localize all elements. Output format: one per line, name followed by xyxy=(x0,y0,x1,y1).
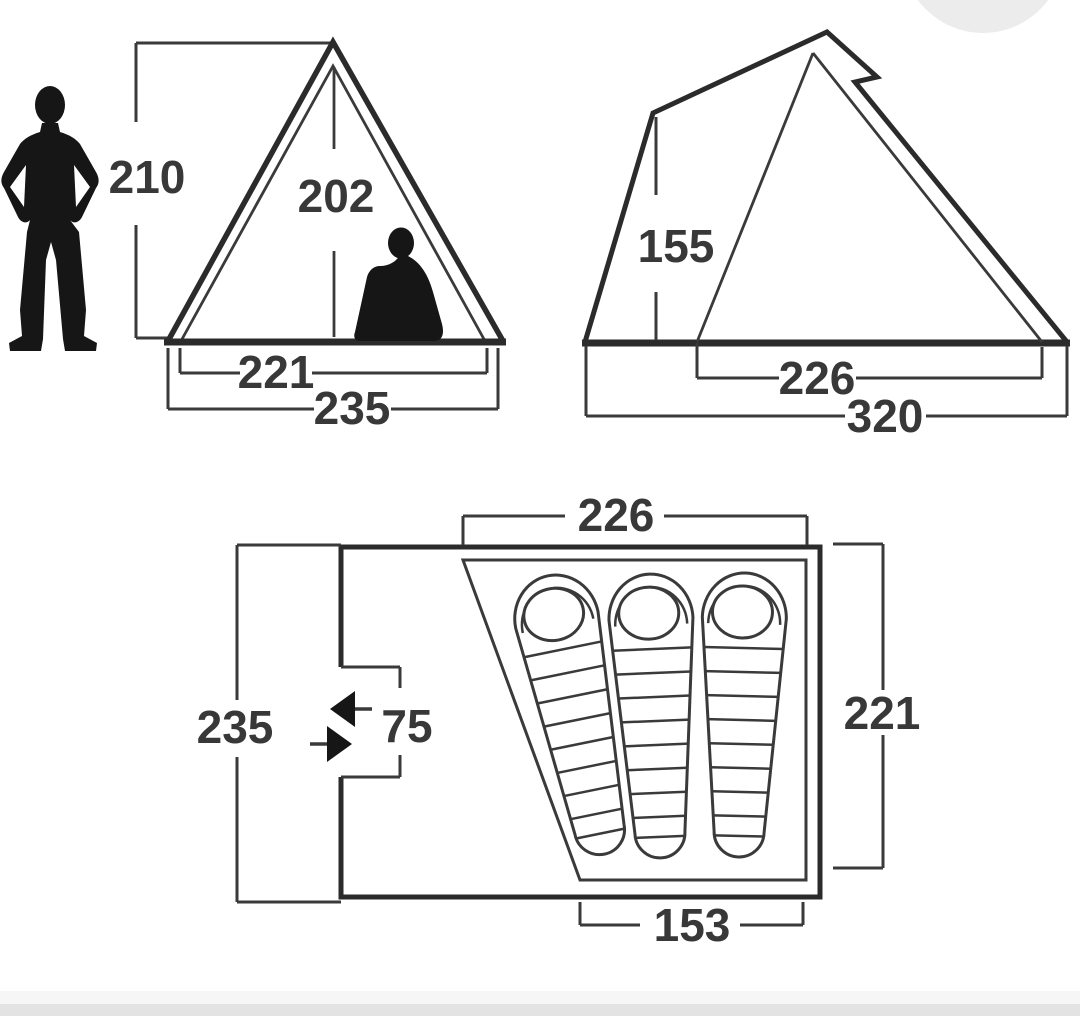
corner-overlay-circle xyxy=(902,0,1064,33)
label-front-inner-height: 202 xyxy=(298,170,375,222)
sleeping-bags xyxy=(507,567,788,862)
front-view xyxy=(136,42,506,409)
label-floor-overall-depth: 235 xyxy=(197,701,274,753)
label-floor-inner-width-bottom: 153 xyxy=(654,899,731,951)
standing-person-body xyxy=(1,123,98,351)
tent-dimension-diagram: 210 202 221 235 155 226 320 226 235 75 2… xyxy=(0,0,1080,1016)
label-front-overall-width: 235 xyxy=(314,382,391,434)
sitting-person-silhouette xyxy=(354,228,443,342)
label-front-inner-width: 221 xyxy=(238,346,315,398)
sitting-person-head xyxy=(388,228,414,259)
label-floor-inner-width-top: 226 xyxy=(578,489,655,541)
standing-person-silhouette xyxy=(1,86,98,351)
width-221-dimension-line xyxy=(180,348,487,373)
sleeping-bag-right xyxy=(696,572,787,858)
label-floor-inner-depth: 221 xyxy=(844,687,921,739)
sitting-person-body xyxy=(354,256,443,341)
label-front-overall-height: 210 xyxy=(109,151,186,203)
label-side-front-height: 155 xyxy=(638,220,715,272)
door-arrow-left-icon xyxy=(330,691,355,727)
standing-person-head xyxy=(35,86,65,124)
label-floor-door-clearance: 75 xyxy=(381,700,432,752)
label-side-inner-length: 226 xyxy=(779,352,856,404)
door-arrow-right-icon xyxy=(327,726,352,762)
length-226-dimension-line xyxy=(697,343,1042,378)
label-side-overall-length: 320 xyxy=(847,390,924,442)
footer-bar xyxy=(0,1004,1080,1016)
footer-bar-light xyxy=(0,991,1080,1004)
